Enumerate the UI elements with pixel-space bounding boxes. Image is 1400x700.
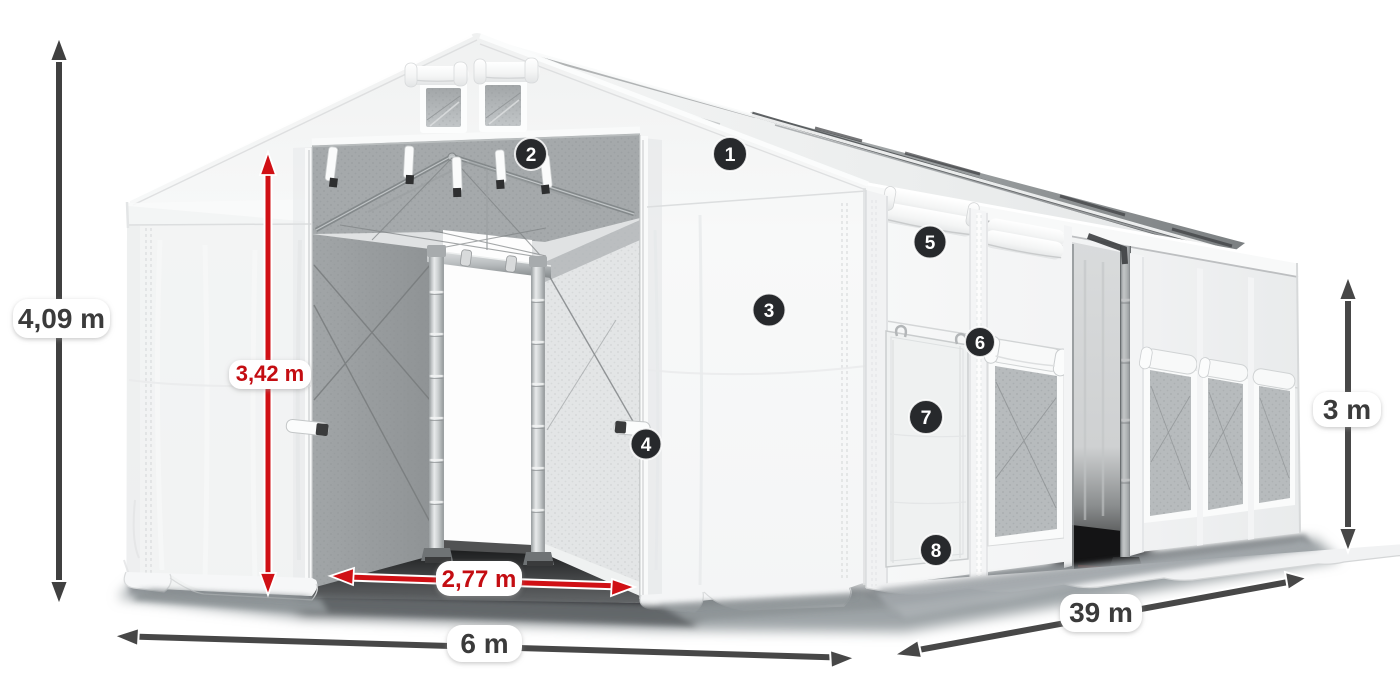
svg-text:4: 4 [641, 435, 652, 456]
svg-text:3,42 m: 3,42 m [236, 361, 305, 386]
svg-text:6 m: 6 m [460, 628, 508, 659]
svg-text:39 m: 39 m [1069, 597, 1133, 628]
svg-text:5: 5 [925, 233, 936, 254]
svg-text:3 m: 3 m [1323, 394, 1371, 425]
svg-text:7: 7 [921, 407, 932, 429]
svg-text:6: 6 [975, 332, 985, 353]
svg-text:1: 1 [725, 144, 736, 166]
svg-text:3: 3 [764, 301, 775, 322]
svg-text:4,09 m: 4,09 m [18, 303, 105, 334]
svg-text:2: 2 [526, 145, 537, 166]
svg-text:8: 8 [931, 541, 942, 562]
svg-text:2,77 m: 2,77 m [442, 566, 517, 593]
